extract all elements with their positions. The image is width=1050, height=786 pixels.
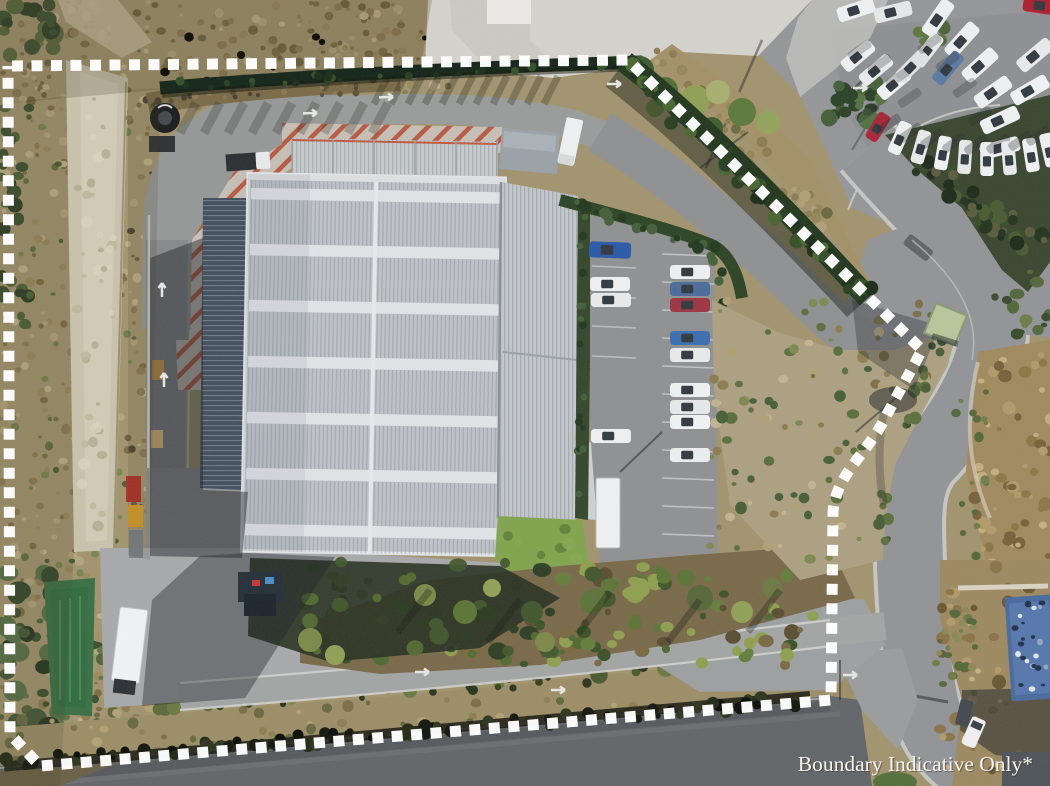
svg-text:Boundary Indicative Only*: Boundary Indicative Only*	[798, 752, 1033, 776]
